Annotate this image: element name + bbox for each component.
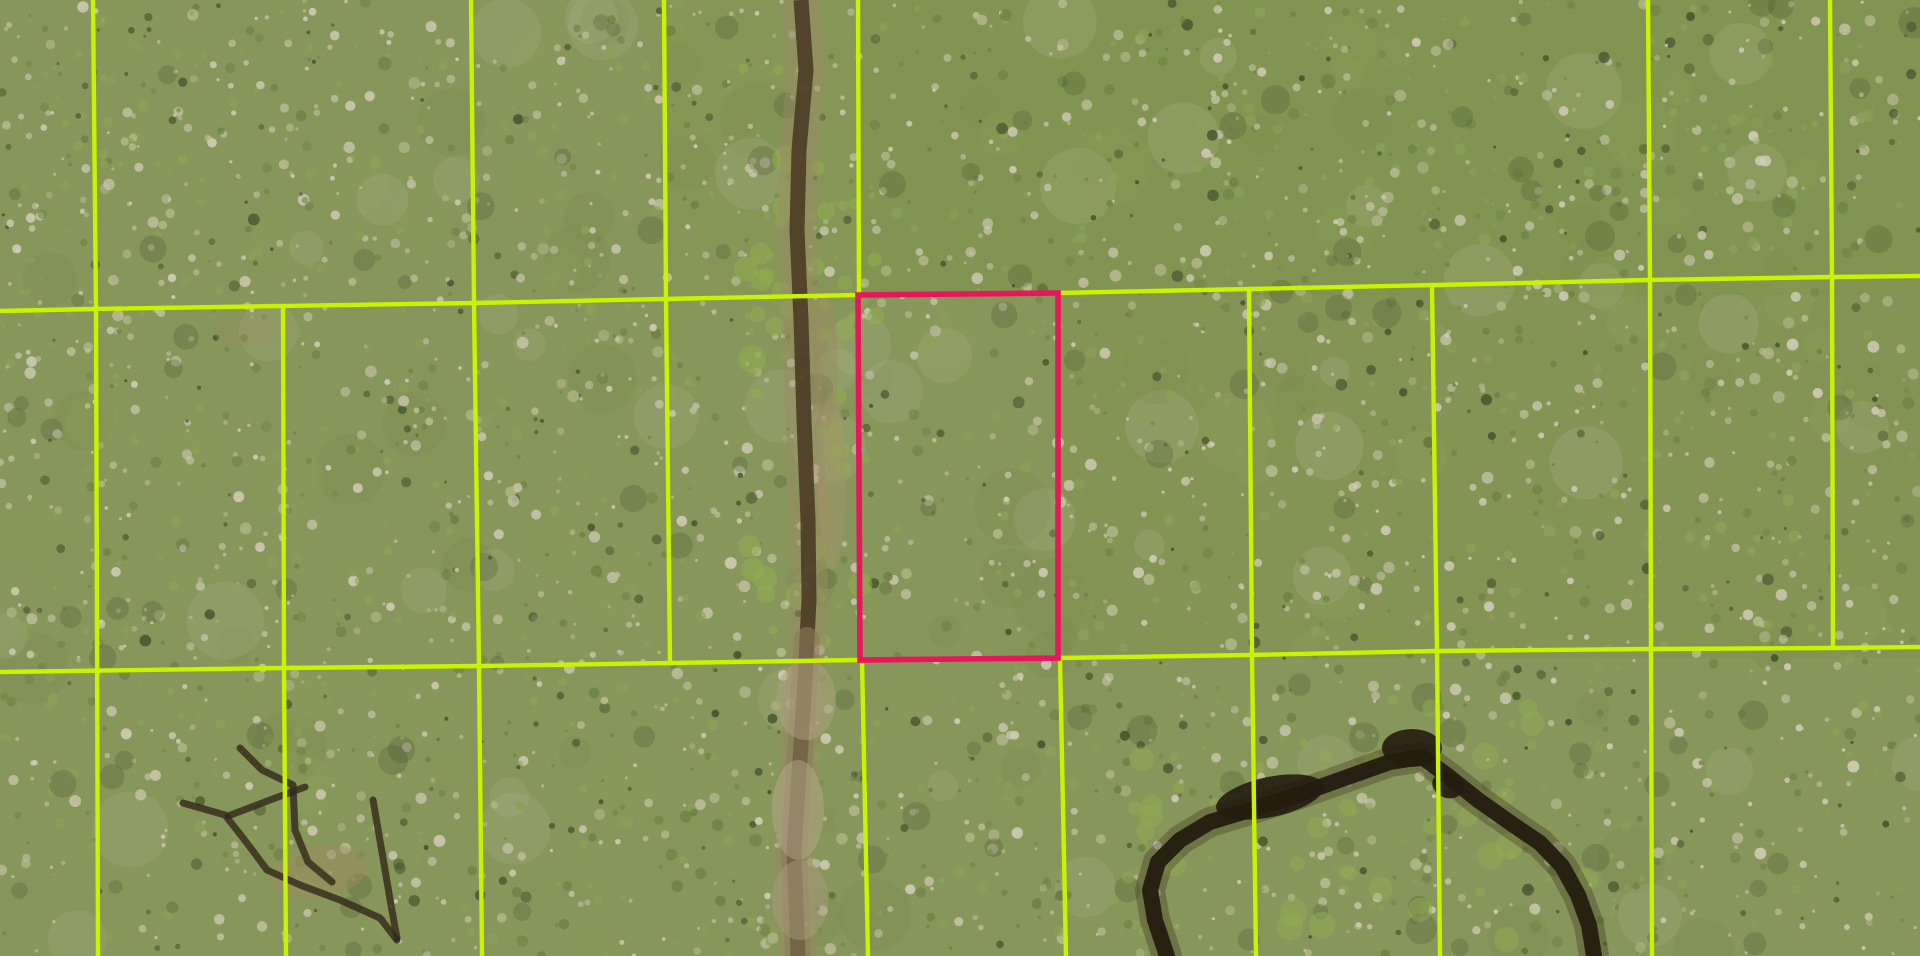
aerial-imagery <box>0 0 1920 956</box>
forest-canopy-texture <box>0 0 1920 956</box>
aerial-map-viewport[interactable] <box>0 0 1920 956</box>
